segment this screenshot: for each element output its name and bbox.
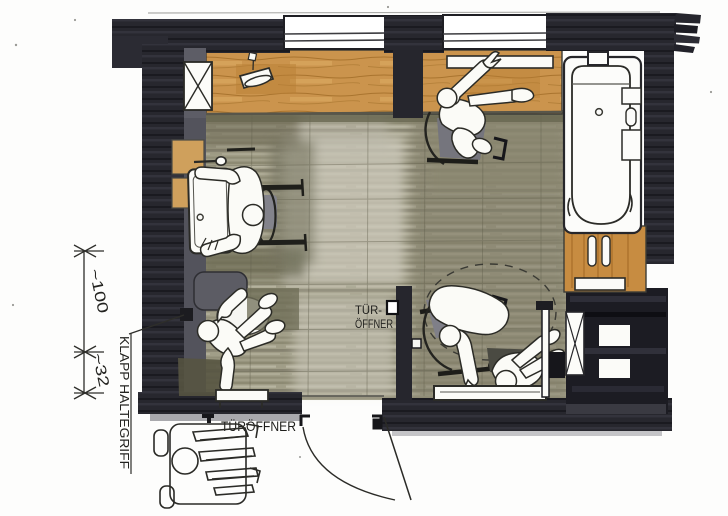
svg-text:ÖFFNER: ÖFFNER [355,319,393,331]
svg-text:TÜR-: TÜR- [355,305,382,317]
svg-text:KLAPP HALTEGRIFF: KLAPP HALTEGRIFF [117,336,131,469]
